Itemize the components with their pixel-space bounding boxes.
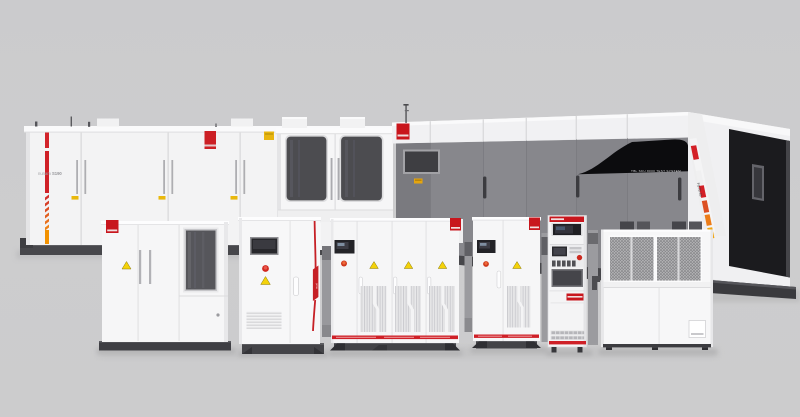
svg-text:nunam S190: nunam S190 [38, 171, 62, 176]
svg-text:pmw: pmw [315, 283, 319, 290]
svg-text:TBL SKU 8000 TEST SYSTEM: TBL SKU 8000 TEST SYSTEM [631, 169, 681, 173]
